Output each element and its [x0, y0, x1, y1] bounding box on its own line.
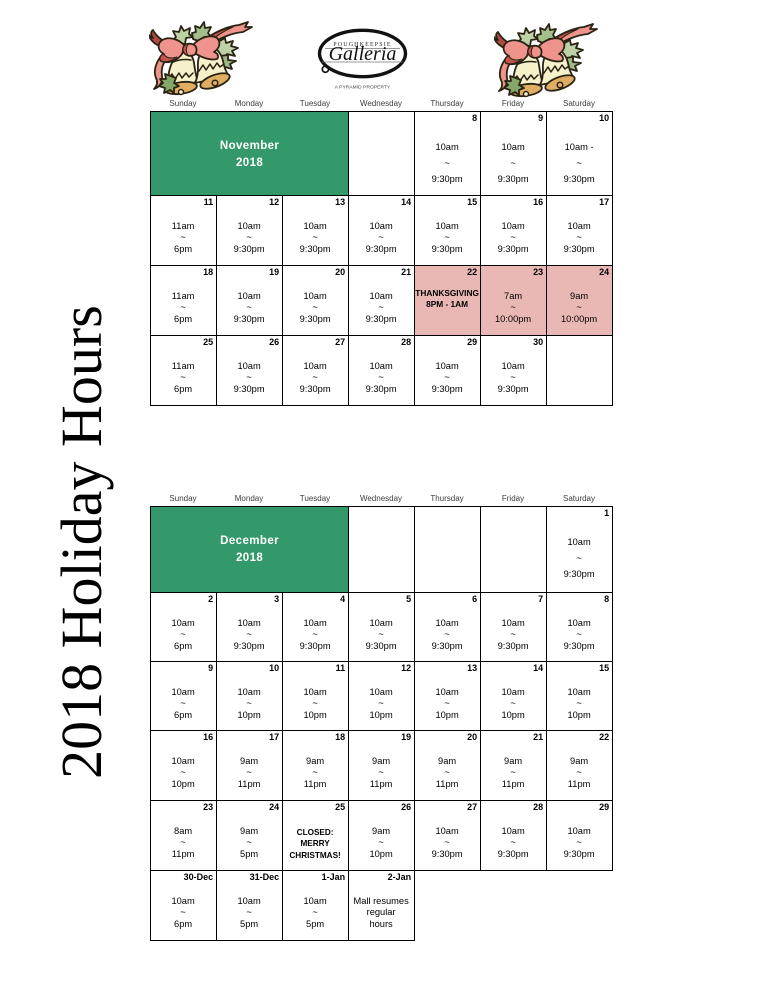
svg-text:Galleria: Galleria: [329, 43, 397, 65]
svg-text:A PYRAMID PROPERTY: A PYRAMID PROPERTY: [335, 85, 391, 91]
